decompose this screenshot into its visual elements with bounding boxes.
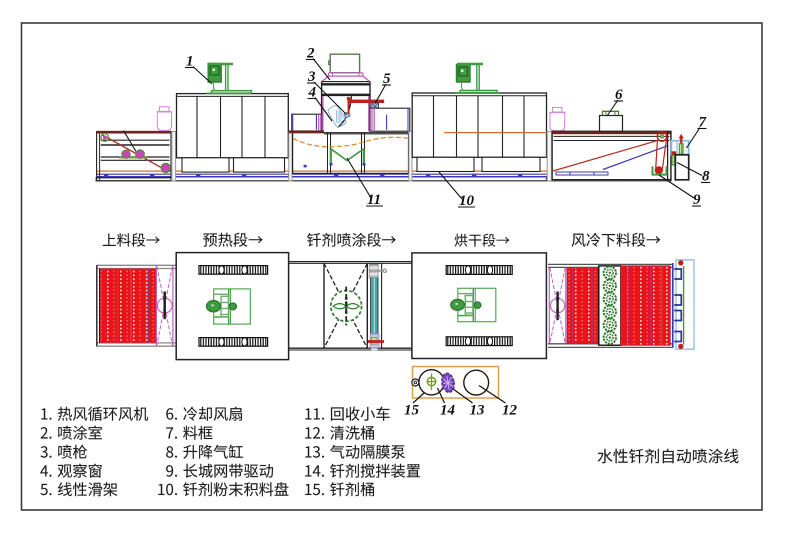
svg-text:15: 15 [404,403,420,419]
svg-text:12: 12 [502,403,518,419]
svg-text:14: 14 [440,403,456,419]
svg-text:13: 13 [470,403,486,419]
